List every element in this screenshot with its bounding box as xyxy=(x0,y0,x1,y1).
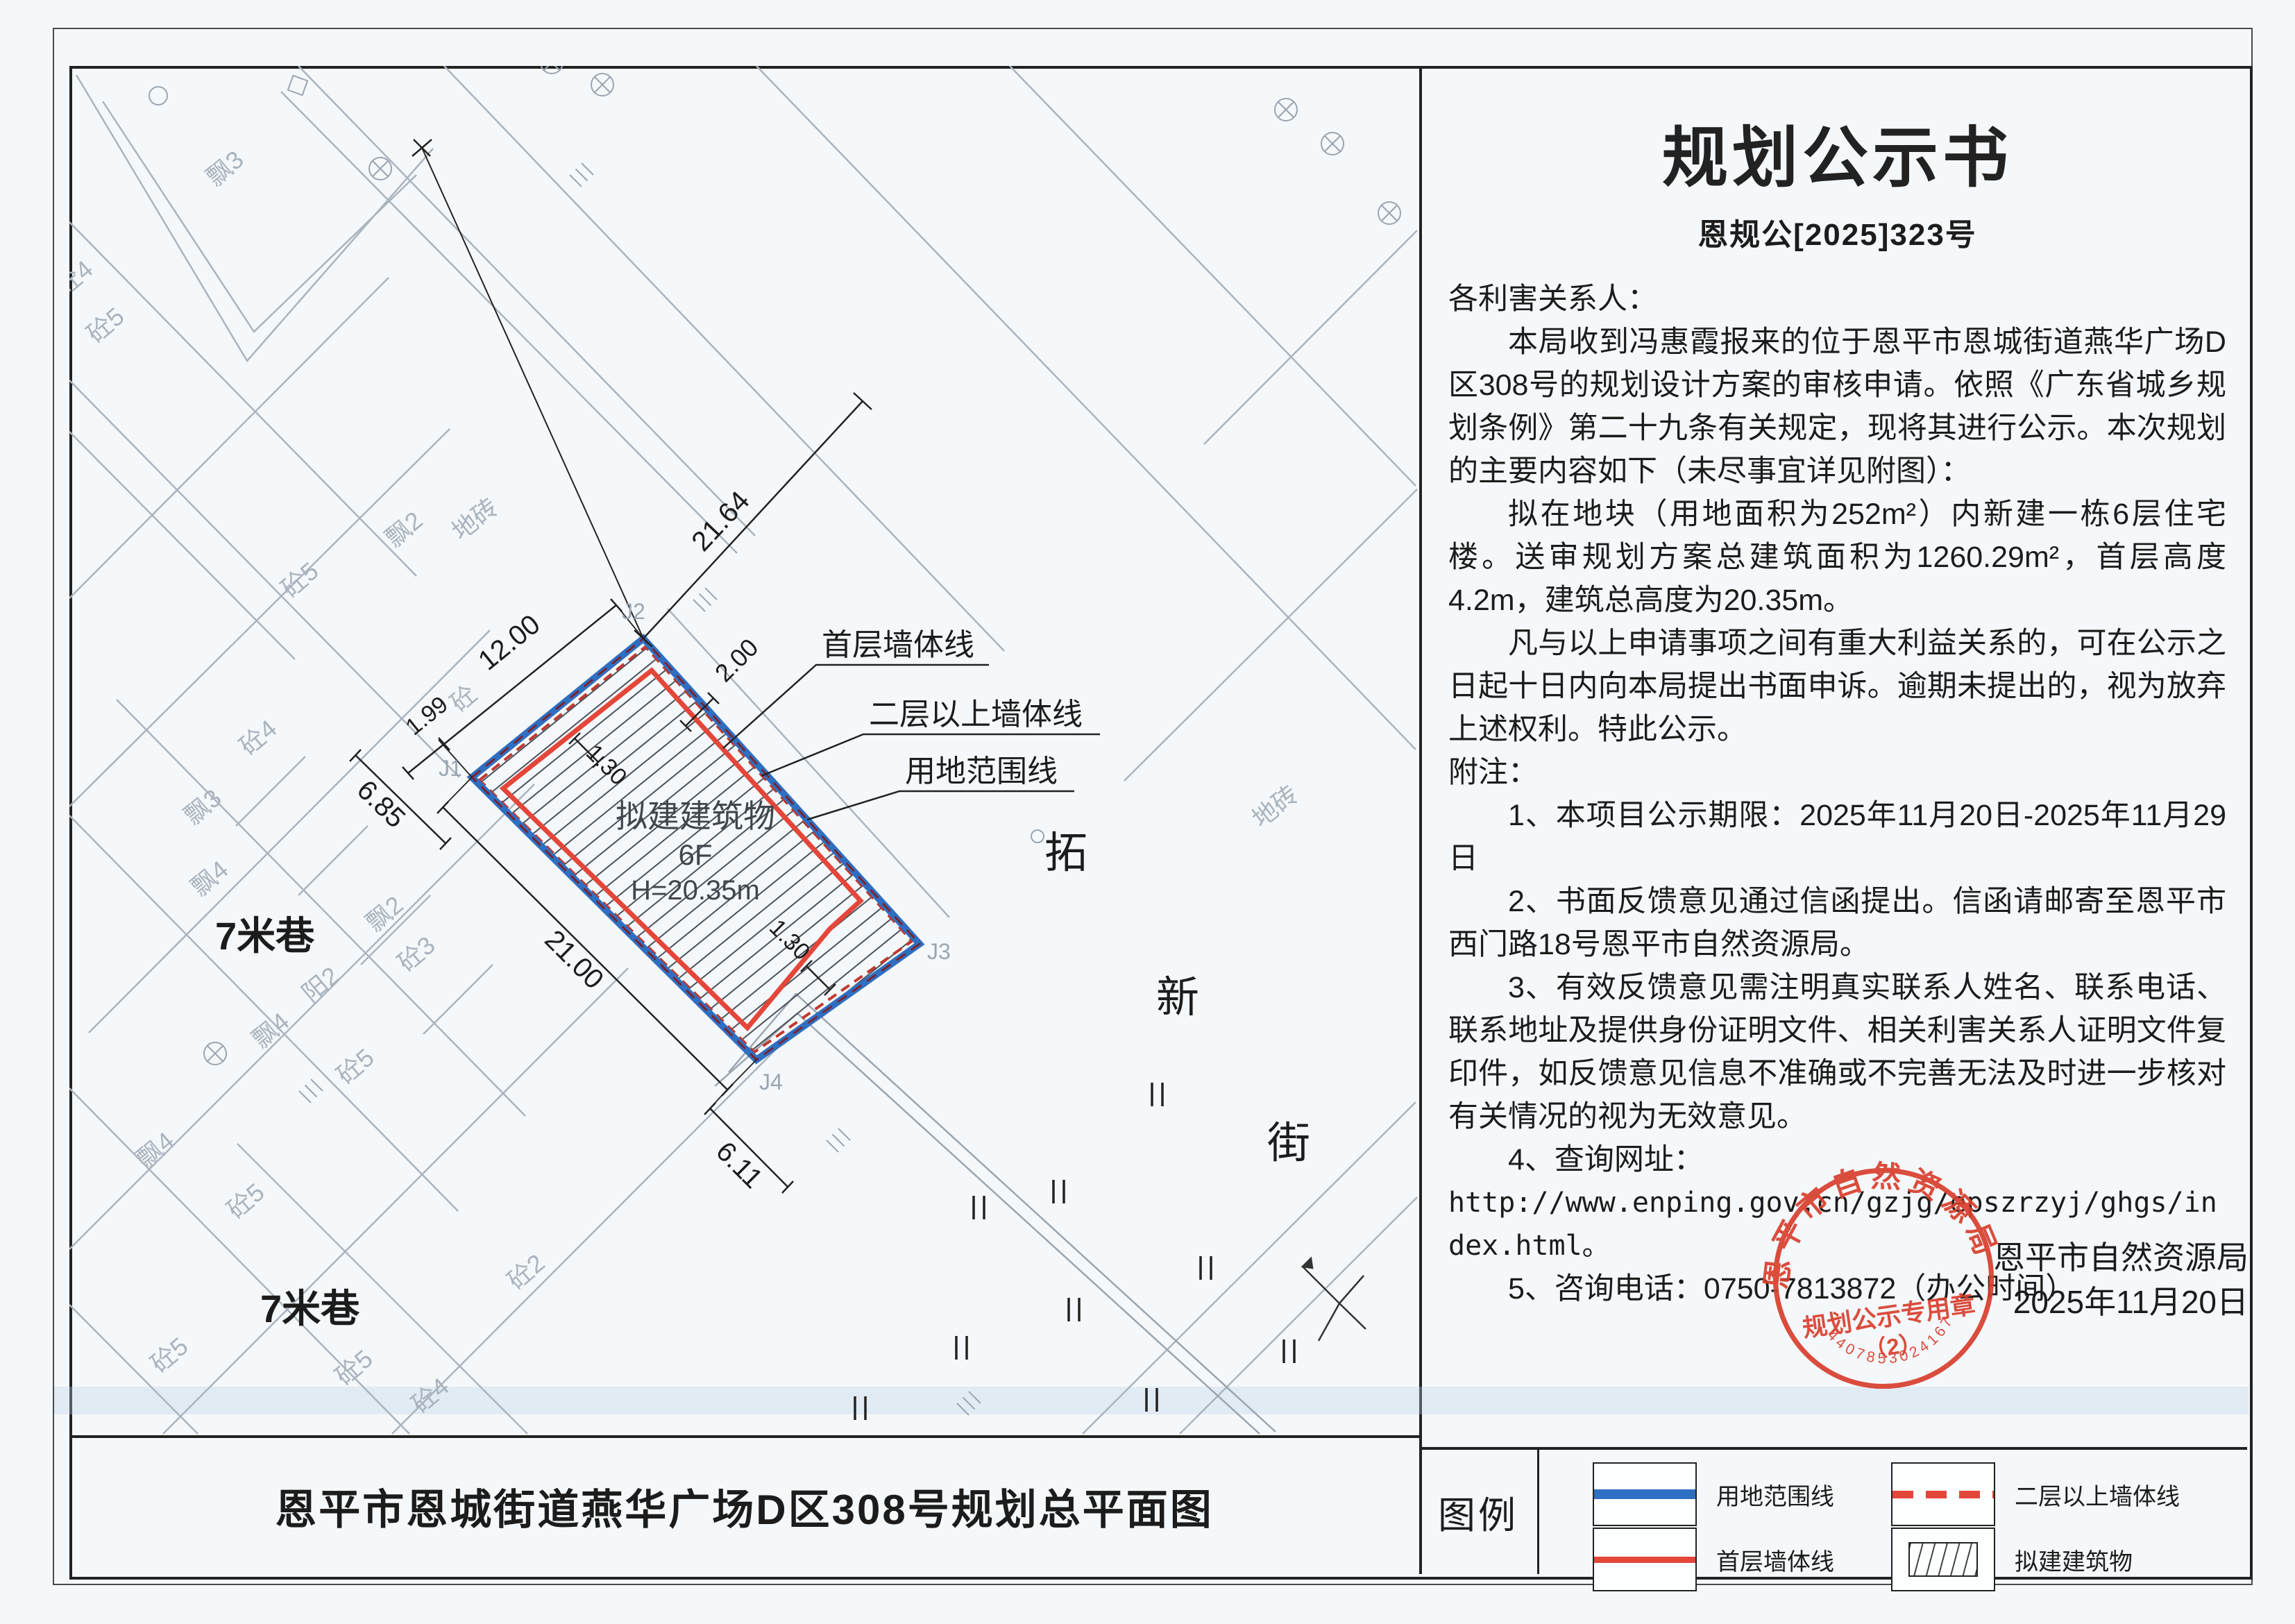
point-j2: J2 xyxy=(622,599,645,624)
legend-label-building: 拟建建筑物 xyxy=(2015,1543,2133,1577)
legend-item-boundary: 用地范围线 xyxy=(1593,1462,1834,1526)
callout-first-floor-wall: 首层墙体线 xyxy=(822,628,974,662)
svg-text:砼5: 砼5 xyxy=(221,1178,269,1224)
point-j4: J4 xyxy=(759,1069,783,1094)
street-char-3: 街 xyxy=(1267,1119,1310,1167)
note-1: 1、本项目公示期限：2025年11月20日-2025年11月29日 xyxy=(1448,794,2226,880)
first-wall-line-sample xyxy=(1594,1557,1695,1563)
street-char-2: 新 xyxy=(1156,974,1199,1022)
svg-text:地砖: 地砖 xyxy=(1246,780,1303,834)
svg-text:砼5: 砼5 xyxy=(331,1043,379,1090)
street-edge-lines xyxy=(715,994,1276,1434)
note-3: 3、有效反馈意见需注明真实联系人姓名、联系电话、联系地址及提供身份证明文件、相关… xyxy=(1448,966,2226,1138)
legend-label-upper-wall: 二层以上墙体线 xyxy=(2015,1478,2180,1512)
svg-text:阳2: 阳2 xyxy=(296,961,344,1008)
lane-label-west: 7米巷 xyxy=(215,914,315,958)
map-caption: 恩平市恩城街道燕华广场D区308号规划总平面图 xyxy=(275,1476,1213,1537)
svg-text:砼5: 砼5 xyxy=(330,1344,378,1391)
svg-text:砼5: 砼5 xyxy=(276,557,323,603)
survey-symbols xyxy=(149,66,1400,1415)
signature-block: 恩平市自然资源局 2025年11月20日 xyxy=(1978,1235,2249,1324)
benchmark-symbol xyxy=(1303,1258,1366,1341)
lane-label-south: 7米巷 xyxy=(260,1287,360,1330)
svg-text:砼5: 砼5 xyxy=(145,1332,193,1378)
building-height: H=20.35m xyxy=(631,875,760,906)
legend-label-first-wall: 首层墙体线 xyxy=(1716,1543,1834,1577)
svg-text:砼5: 砼5 xyxy=(81,302,129,348)
legend-item-upper-wall: 二层以上墙体线 xyxy=(1891,1462,2180,1526)
dim-21-64: 21.64 xyxy=(686,486,755,557)
upper-wall-line-sample xyxy=(1892,1491,1994,1498)
callout-upper-floor-wall: 二层以上墙体线 xyxy=(869,697,1083,731)
svg-text:飘3: 飘3 xyxy=(178,784,226,830)
dim-12-00: 12.00 xyxy=(473,609,545,676)
legend-swatch-upper-wall xyxy=(1891,1462,1995,1526)
legend-item-building: 拟建建筑物 xyxy=(1891,1528,2133,1591)
note-2: 2、书面反馈意见通过信函提出。信函请邮寄至恩平市西门路18号恩平市自然资源局。 xyxy=(1448,880,2226,966)
dim-6-85: 6.85 xyxy=(351,775,412,834)
notice-paragraph-2: 拟在地块（用地面积为252m²）内新建一栋6层住宅楼。送审规划方案总建筑面积为1… xyxy=(1448,493,2226,622)
notice-paragraph-1: 本局收到冯惠霞报来的位于恩平市恩城街道燕华广场D区308号的规划设计方案的审核申… xyxy=(1448,321,2226,493)
dim-2-00: 2.00 xyxy=(709,633,764,688)
svg-text:砼2: 砼2 xyxy=(502,1249,550,1295)
svg-text:砼4: 砼4 xyxy=(234,714,282,761)
boundary-line-sample xyxy=(1594,1489,1695,1499)
svg-text:砼3: 砼3 xyxy=(392,931,440,977)
callout-land-boundary: 用地范围线 xyxy=(905,754,1058,788)
issuer-name: 恩平市自然资源局 xyxy=(1978,1235,2249,1280)
site-plan-map: 拟建建筑物 6F H=20.35m xyxy=(69,66,1419,1435)
point-j3: J3 xyxy=(927,939,951,964)
dim-6-11: 6.11 xyxy=(710,1136,768,1194)
map-caption-strip: 恩平市恩城街道燕华广场D区308号规划总平面图 xyxy=(69,1435,1419,1574)
notes-label: 附注： xyxy=(1448,751,2226,794)
svg-text:飘3: 飘3 xyxy=(201,145,248,192)
legend-label-boundary: 用地范围线 xyxy=(1716,1478,1834,1512)
notice-paragraph-3: 凡与以上申请事项之间有重大利益关系的，可在公示之日起十日内向本局提出书面申诉。逾… xyxy=(1448,622,2226,751)
notice-doc-number: 恩规公[2025]323号 xyxy=(1448,210,2226,254)
svg-text:飘4: 飘4 xyxy=(131,1126,179,1173)
legend-strip: 图例 用地范围线 二层以上墙体线 首层墙体线 拟建建筑物 xyxy=(1419,1447,2247,1574)
legend-swatch-building xyxy=(1891,1528,1995,1591)
legend-swatch-first-wall xyxy=(1593,1528,1697,1591)
dim-1-99: 1.99 xyxy=(400,691,452,741)
svg-text:砼4: 砼4 xyxy=(69,255,99,301)
notice-title: 规划公示书 xyxy=(1448,105,2226,200)
svg-text:地砖: 地砖 xyxy=(446,493,503,546)
point-j1: J1 xyxy=(439,756,462,781)
building-floors: 6F xyxy=(678,838,712,871)
svg-text:飘4: 飘4 xyxy=(246,1007,294,1054)
building-name: 拟建建筑物 xyxy=(616,798,775,834)
grass-symbols xyxy=(855,1083,1294,1420)
building-hatch-sample xyxy=(1908,1542,1978,1577)
legend-item-first-wall: 首层墙体线 xyxy=(1593,1528,1834,1591)
notice-salutation: 各利害关系人： xyxy=(1448,278,2226,321)
legend-title: 图例 xyxy=(1419,1450,1539,1574)
dim-21-00: 21.00 xyxy=(539,924,609,995)
legend-swatch-boundary xyxy=(1593,1462,1697,1526)
issue-date: 2025年11月20日 xyxy=(1978,1280,2249,1324)
svg-text:飘2: 飘2 xyxy=(360,890,408,937)
scanned-notice-sheet: 拟建建筑物 6F H=20.35m xyxy=(0,0,2295,1624)
street-char-1: 拓 xyxy=(1044,829,1087,877)
official-stamp: 恩平市自然资源局 规划公示专用章 （2） 4407853024167 xyxy=(1747,1142,2019,1414)
